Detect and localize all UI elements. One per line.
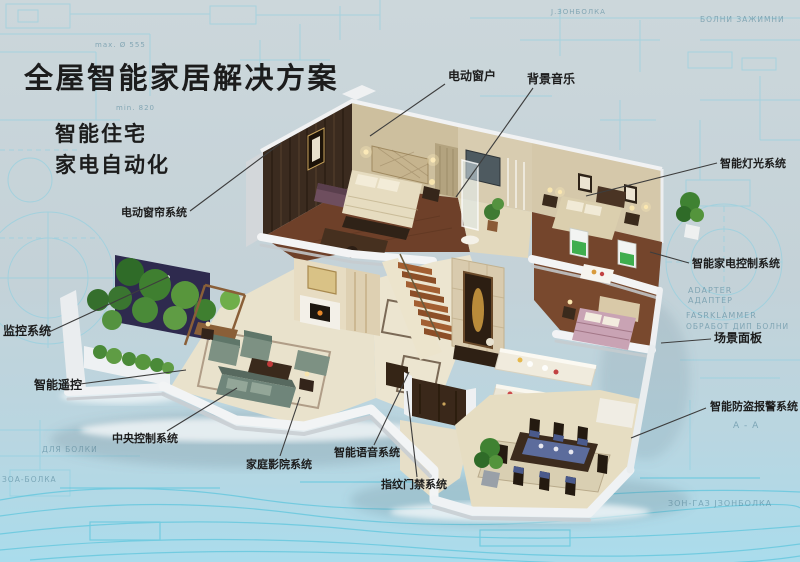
label-electric-curtain: 电动窗帘系统 <box>121 205 187 219</box>
potted-plant <box>487 220 498 232</box>
label-central-control: 中央控制系统 <box>112 431 178 445</box>
smart-home-infographic: max. Ø 555 min. 820 Ј.ЗОНБОЛКА БОЛНИ ЗАЖ… <box>0 0 800 562</box>
fire-glow <box>317 310 322 315</box>
subtitle-smart-residence: 智能住宅 <box>55 122 147 146</box>
table-flowers <box>267 361 273 367</box>
label-home-theater: 家庭影院系统 <box>246 457 312 471</box>
label-burglar-alarm: 智能防盗报警系统 <box>710 399 798 413</box>
bp-text-6: FASRKLAMMER <box>686 311 757 320</box>
flowers <box>486 338 494 346</box>
bp-text-3: БОЛНИ ЗАЖИМНИ <box>700 15 785 24</box>
label-electric-window: 电动窗户 <box>448 68 496 83</box>
side-table <box>201 328 214 340</box>
bp-text-2: Ј.ЗОНБОЛКА <box>550 8 606 16</box>
bp-text-0: max. Ø 555 <box>95 41 146 49</box>
bp-text-1: min. 820 <box>116 104 155 112</box>
wall-lamp <box>430 157 435 162</box>
label-scene-panel: 场景面板 <box>714 330 763 345</box>
bathtub <box>461 236 479 245</box>
infographic-canvas: max. Ø 555 min. 820 Ј.ЗОНБОЛКА БОЛНИ ЗАЖ… <box>0 0 800 562</box>
door-knob <box>442 402 445 405</box>
label-fingerprint-access: 指纹门禁系统 <box>381 477 447 491</box>
label-background-music: 背景音乐 <box>527 71 575 86</box>
wall-lamp <box>363 149 368 154</box>
label-smart-remote: 智能遥控 <box>33 377 82 392</box>
golden-figure <box>472 288 484 332</box>
page-title: 全屋智能家居解决方案 <box>23 61 339 95</box>
bp-text-10: ЗОА-БОЛКА <box>2 475 57 484</box>
table-lamp <box>429 179 435 185</box>
label-appliance-control: 智能家电控制系统 <box>692 256 780 270</box>
shower-glass <box>462 160 478 230</box>
label-smart-lighting: 智能灯光系统 <box>720 156 786 170</box>
outer-wall-left <box>246 152 263 247</box>
subtitle-appliance-automation: 家电自动化 <box>55 153 170 177</box>
label-monitoring: 监控系统 <box>3 323 51 338</box>
bp-text-4: ADAPTER <box>688 286 732 295</box>
bp-text-5: АДАПТЕР <box>688 296 733 305</box>
bp-text-7: ОБРАБОТ ДИП БОЛНИ <box>686 322 789 331</box>
art-panel-wall <box>452 258 504 368</box>
bp-text-8: А - А <box>733 421 759 431</box>
label-voice-system: 智能语音系统 <box>334 445 400 459</box>
